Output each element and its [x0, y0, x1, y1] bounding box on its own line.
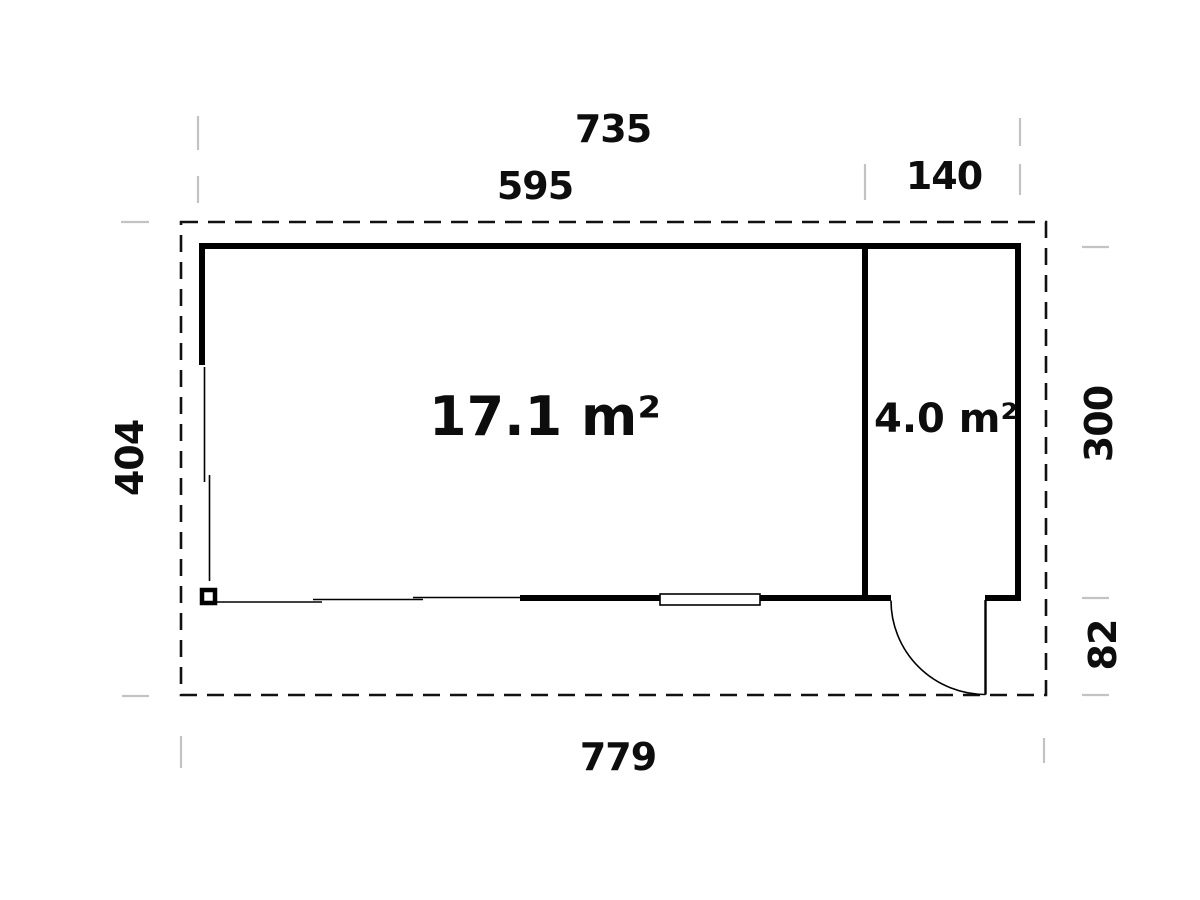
window: [660, 594, 760, 605]
dim-right-porch-depth: 82: [1084, 620, 1122, 671]
area-label-side-room: 4.0 m²: [874, 399, 1018, 439]
partition-wall: [862, 243, 868, 601]
dim-right-depth: 300: [1080, 386, 1118, 462]
dim-left-depth: 404: [111, 420, 149, 496]
area-label-main-room: 17.1 m²: [429, 390, 661, 444]
wall-top: [199, 243, 1021, 249]
dim-top-main-width: 595: [497, 167, 573, 205]
wall-bottom-stub: [985, 595, 1021, 601]
dim-top-side-width: 140: [906, 157, 982, 195]
door-arc: [891, 601, 986, 695]
door-swing: [891, 600, 986, 695]
corner-post: [202, 590, 215, 603]
dim-bottom-overall-width: 779: [580, 738, 656, 776]
floor-plan: 735 595 140 779 404 300 82 17.1 m² 4.0 m…: [0, 0, 1200, 900]
roof-overhang-dashed-outline: [181, 222, 1046, 695]
wall-left-upper: [199, 243, 205, 365]
dim-top-overall-width: 735: [575, 110, 651, 148]
